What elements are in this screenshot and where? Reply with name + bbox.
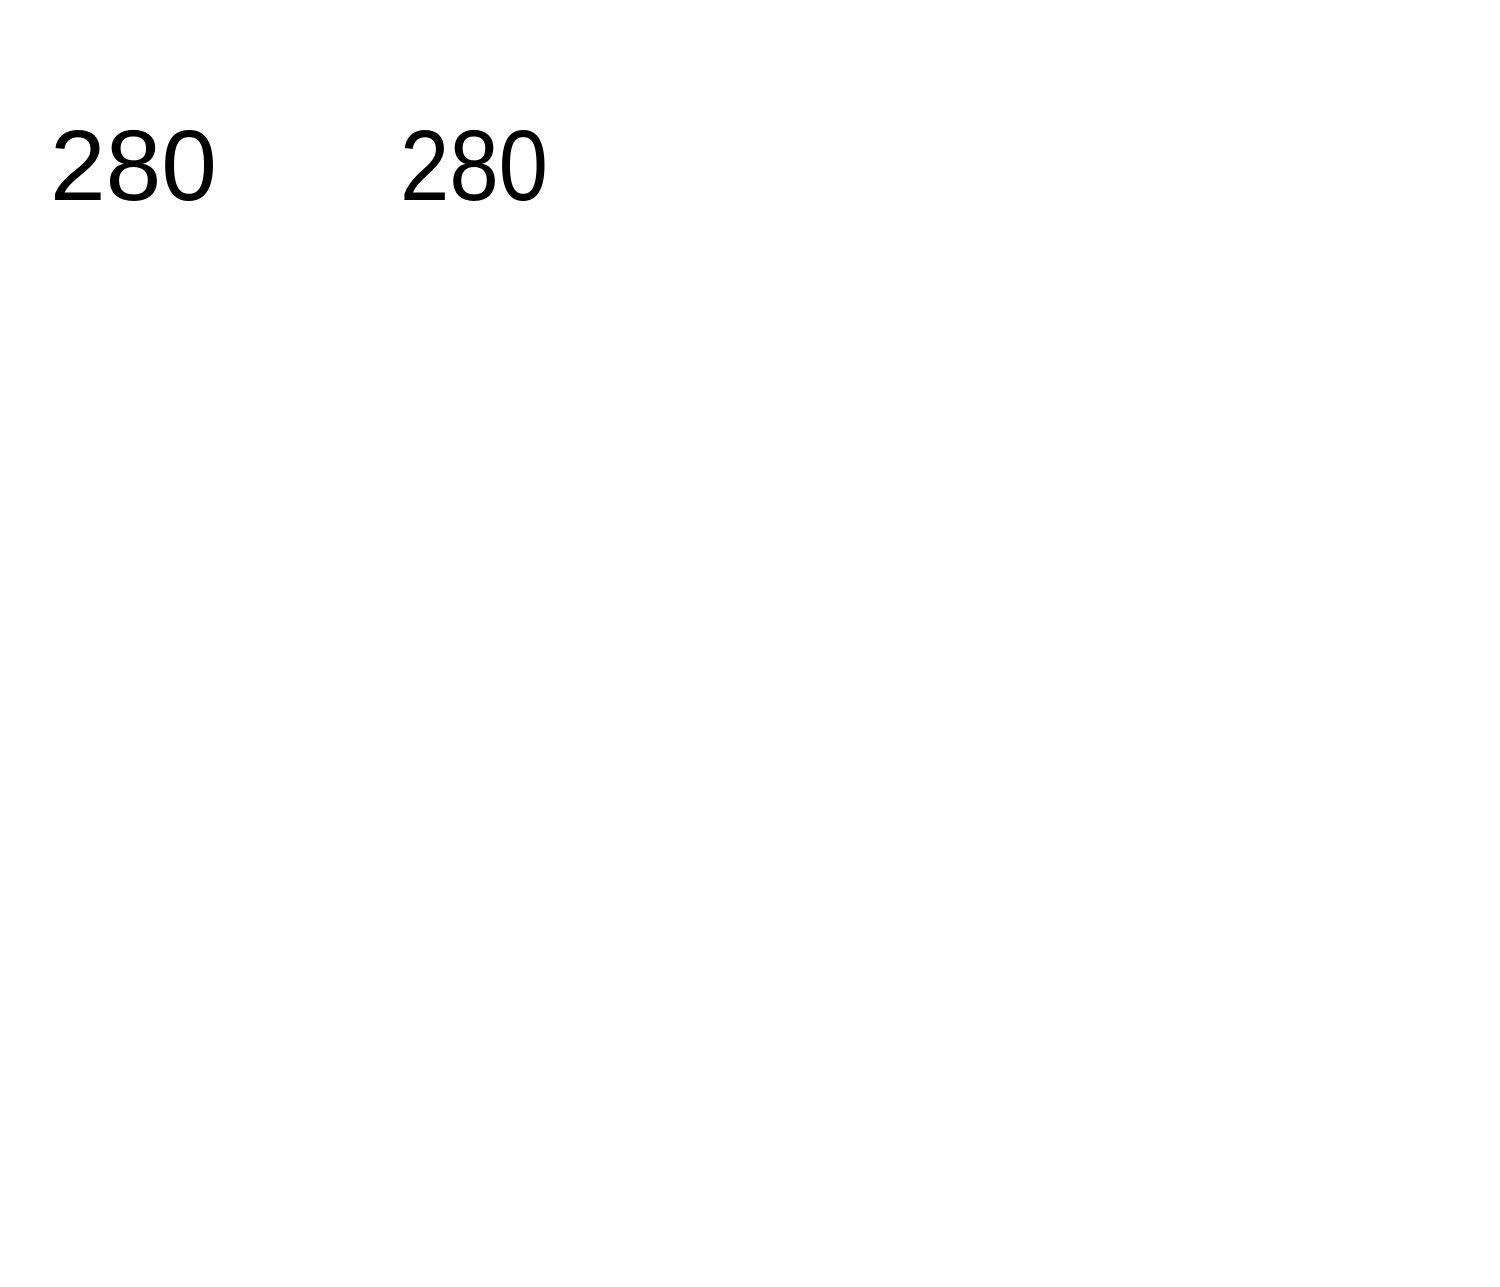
svg-text:280: 280: [50, 110, 217, 222]
svg-text:280: 280: [400, 110, 548, 222]
